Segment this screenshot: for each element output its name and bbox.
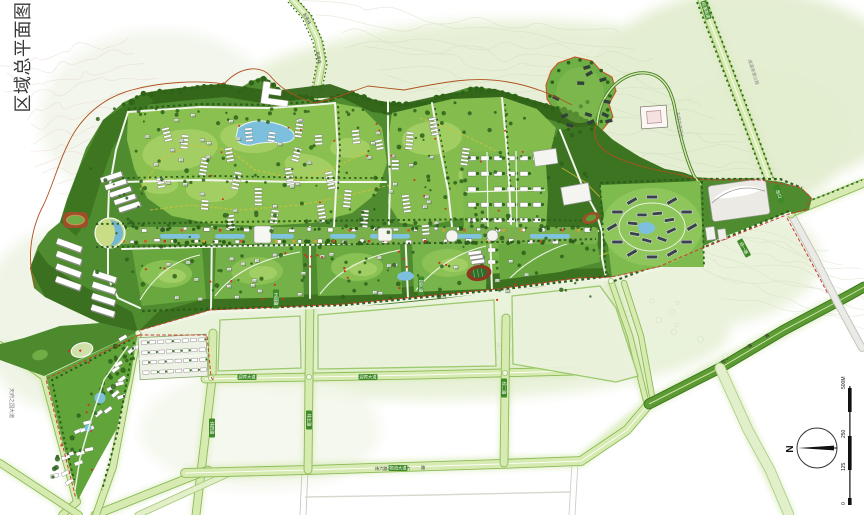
svg-text:迎宾大道: 迎宾大道 [359, 374, 377, 381]
svg-text:州园路: 州园路 [272, 293, 279, 307]
svg-text:125: 125 [841, 462, 847, 471]
svg-text:纬六路: 纬六路 [375, 465, 388, 472]
svg-text:0: 0 [841, 502, 847, 505]
svg-text:N: N [785, 445, 796, 452]
svg-text:250: 250 [841, 429, 847, 438]
svg-text:物流大道: 物流大道 [389, 465, 407, 472]
svg-text:迎宾大道: 迎宾大道 [238, 374, 256, 381]
svg-text:园区路: 园区路 [417, 280, 424, 294]
svg-text:区域总平面图: 区域总平面图 [13, 2, 33, 113]
svg-text:纬五路: 纬五路 [305, 414, 312, 428]
svg-text:500M: 500M [841, 376, 847, 389]
svg-text:经二路: 经二路 [500, 382, 507, 396]
svg-text:天府之国大道: 天府之国大道 [8, 388, 15, 418]
svg-text:纬四路: 纬四路 [208, 422, 215, 436]
